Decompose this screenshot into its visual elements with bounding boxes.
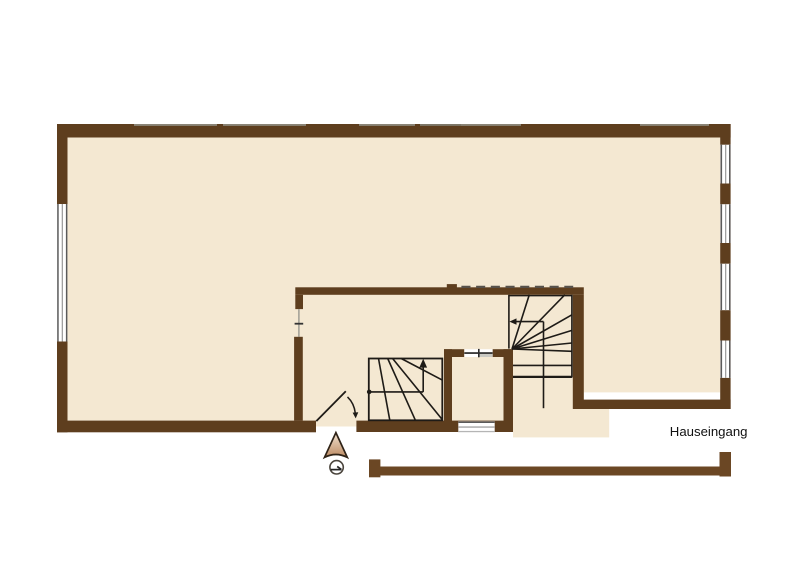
svg-text:Hauseingang: Hauseingang <box>670 424 748 439</box>
